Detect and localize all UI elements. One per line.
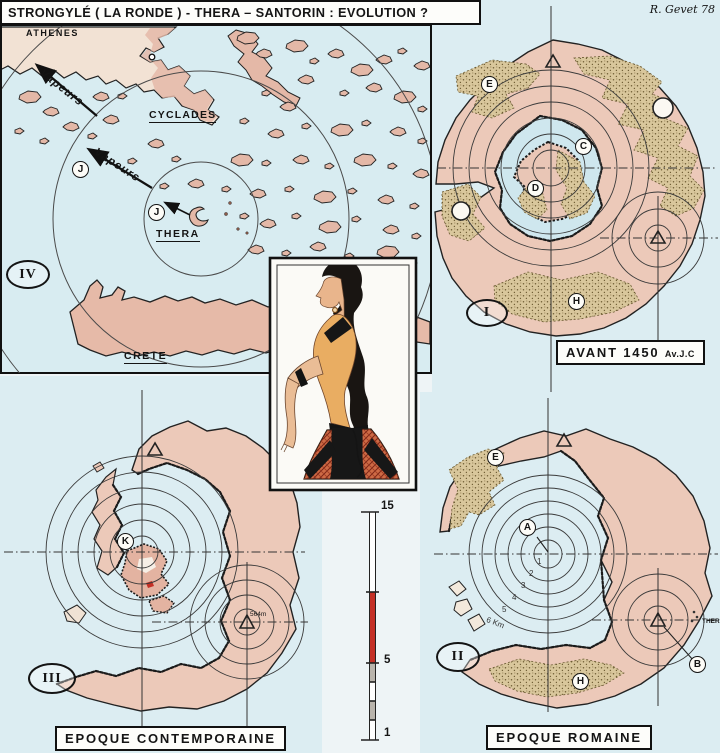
caption-before-1450: AVANT 1450 Av.J.C: [556, 340, 705, 365]
caption-roman: EPOQUE ROMAINE: [486, 725, 652, 750]
scale-top-value: 15: [381, 501, 394, 513]
ring-label-5km: 5: [502, 606, 506, 614]
label-crete: CRETE: [124, 351, 167, 364]
label-athens: ATHENES: [26, 29, 79, 38]
earring: [333, 308, 338, 313]
marker-k-kameni: K: [117, 533, 134, 550]
map-artwork: [0, 0, 720, 753]
town-circle-east: [653, 98, 673, 118]
panel-numeral-aegean: IV: [6, 260, 50, 289]
marker-a-roman: A: [519, 519, 536, 536]
marker-d-before: D: [527, 180, 544, 197]
marker-e-roman: E: [487, 449, 504, 466]
marker-j-inner: J: [148, 204, 165, 221]
ring-label-3km: 3: [521, 582, 525, 590]
poster: STRONGYLÉ ( LA RONDE ) - THERA – SANTORI…: [0, 0, 720, 753]
page-title: STRONGYLÉ ( LA RONDE ) - THERA – SANTORI…: [8, 5, 428, 20]
author-signature: R. Gevet 78: [650, 3, 715, 16]
title-bar: STRONGYLÉ ( LA RONDE ) - THERA – SANTORI…: [0, 0, 481, 25]
skirt-black-shorts: [330, 428, 366, 479]
label-thera: THERA: [156, 229, 200, 242]
caption-before-main: AVANT 1450: [566, 345, 659, 360]
panel-numeral-roman: II: [436, 642, 480, 672]
figure-inset: [270, 258, 416, 490]
label-peak-elevation: 564m: [250, 612, 266, 619]
marker-b-roman: B: [689, 656, 706, 673]
marker-h-roman: H: [572, 673, 589, 690]
town-circle-west: [452, 202, 470, 220]
label-cyclades: CYCLADES: [149, 110, 216, 123]
marker-c-before: C: [575, 138, 592, 155]
caption-before-era: Av.J.C: [665, 349, 695, 359]
scale-middle-value: 5: [384, 655, 390, 667]
marker-j-outer: J: [72, 161, 89, 178]
scale-bottom-value: 1: [384, 728, 390, 740]
ring-label-4km: 4: [512, 594, 516, 602]
ring-label-1km: 1: [537, 558, 541, 566]
marker-e-before: E: [481, 76, 498, 93]
panel-numeral-contemporary: III: [28, 663, 76, 694]
marker-h-before: H: [568, 293, 585, 310]
panel-numeral-before: I: [466, 299, 508, 327]
ring-label-2km: 2: [529, 570, 533, 578]
label-ancient-thera: THERA: [702, 619, 720, 626]
caption-contemporary: EPOQUE CONTEMPORAINE: [55, 726, 286, 751]
athens-town-dot: [149, 54, 155, 60]
